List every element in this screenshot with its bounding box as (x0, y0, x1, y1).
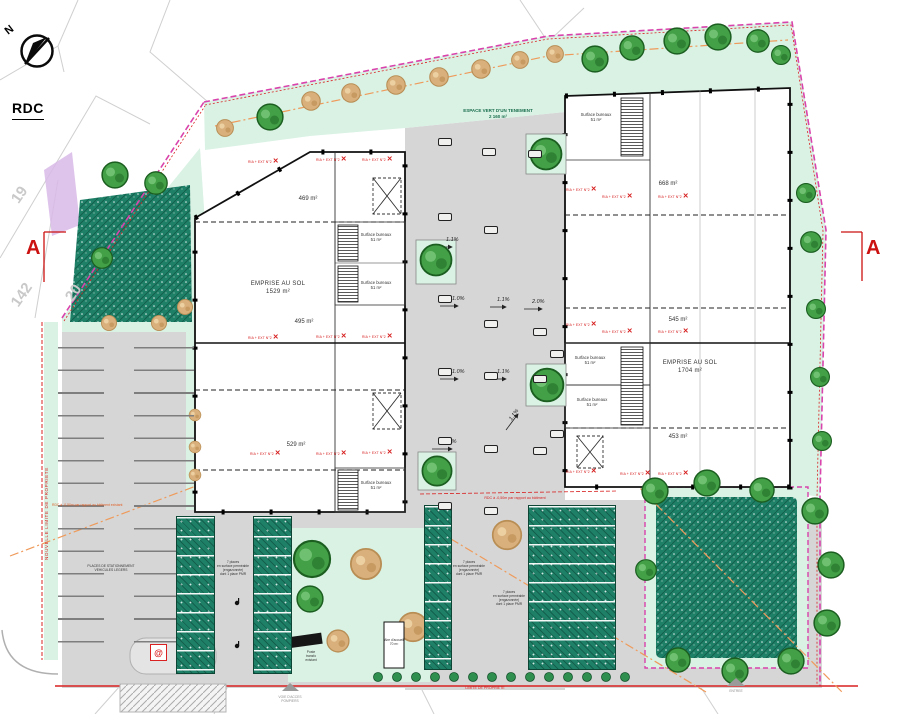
tree-icon (666, 648, 690, 672)
tree-icon (422, 456, 451, 485)
tree-icon (750, 478, 774, 502)
permeable-parking-bay (253, 516, 292, 674)
spot-level-chip (438, 213, 452, 221)
spot-level-chip (484, 445, 498, 453)
spot-level-chip (484, 320, 498, 328)
slope-label: 1.1% (497, 369, 510, 375)
fire-safety-tag: RIA + EXT N°2✕ (248, 334, 279, 341)
north-arrow-icon (22, 36, 53, 67)
spot-level-chip (438, 295, 452, 303)
fire-safety-tag: RIA + EXT N°2✕ (250, 450, 281, 457)
tree-icon (582, 46, 608, 72)
property-limit-label: NOUVELLE LIMITE DE PROPRIETE (44, 467, 50, 560)
unit-area-label: 469 m² (288, 196, 328, 204)
transfo-note: Poste transfo existant (296, 650, 326, 662)
spot-level-chip (438, 502, 452, 510)
fire-safety-tag: RIA + EXT N°2✕ (566, 186, 597, 193)
permeable-note: 7 places en surface perméable (engazonné… (492, 590, 526, 606)
fire-safety-tag: RIA + EXT N°2✕ (566, 468, 597, 475)
fire-safety-tag: RIA + EXT N°2✕ (658, 328, 689, 335)
unit-area-label: 529 m² (276, 442, 316, 450)
spot-level-chip (550, 350, 564, 358)
slope-label: 1.1% (446, 237, 459, 243)
level-note-left: RDC à -0,50m par rapport au bâtiment exi… (52, 503, 192, 507)
shrub-icon (217, 120, 234, 137)
tree-icon (257, 104, 283, 130)
unit-area-label: 545 m² (658, 317, 698, 325)
shrub-icon (342, 84, 360, 102)
fire-safety-tag: RIA + EXT N°2✕ (316, 450, 347, 457)
tree-icon (818, 552, 844, 578)
office-label: Surface bureaux51 m² (568, 397, 616, 408)
spot-level-chip (438, 437, 452, 445)
tree-icon (811, 368, 830, 387)
fire-safety-tag: RIA + EXT N°2✕ (602, 328, 633, 335)
parking-stalls-west (58, 326, 104, 660)
spot-level-chip (533, 328, 547, 336)
planted-area-west (70, 185, 192, 322)
fire-safety-tag: RIA + EXT N°2✕ (658, 193, 689, 200)
fire-safety-tag: RIA + EXT N°2✕ (248, 158, 279, 165)
tree-icon (807, 300, 826, 319)
spot-level-chip (484, 507, 498, 515)
fire-safety-tag: RIA + EXT N°2✕ (316, 333, 347, 340)
fire-safety-tag: RIA + EXT N°2✕ (362, 449, 393, 456)
shrub-icon (547, 46, 564, 63)
spot-level-chip (533, 447, 547, 455)
tree-icon (92, 248, 113, 269)
tree-icon (797, 184, 816, 203)
spot-level-chip (550, 430, 564, 438)
tree-icon (421, 245, 452, 276)
tree-icon (814, 610, 840, 636)
tree-icon (813, 432, 832, 451)
fire-safety-tag: RIA + EXT N°2✕ (566, 321, 597, 328)
tree-icon (694, 470, 720, 496)
tree-icon (642, 478, 668, 504)
emprise-label: EMPRISE AU SOL 1704 m² (640, 360, 740, 375)
espace-vert-label: ESPACE VERT D'UN TENEMENT2 160 m² (450, 108, 546, 120)
building-east (565, 88, 790, 487)
office-label: Surface bureaux51 m² (352, 480, 400, 491)
shrub-icon (177, 299, 192, 314)
permeable-parking-bay (176, 516, 215, 674)
access-label: ENTREE (726, 689, 746, 693)
electrical-symbol: @ (150, 644, 167, 661)
slope-label: 2.0% (532, 299, 545, 305)
aire-accueil-note: Aire d'accueil 70 m² (378, 638, 410, 646)
fire-safety-tag: RIA + EXT N°2✕ (316, 156, 347, 163)
shrub-icon (387, 76, 405, 94)
spot-level-chip (484, 372, 498, 380)
office-label: Surface bureaux51 m² (352, 280, 400, 291)
permeable-parking-bay (528, 505, 616, 670)
level-note-center: RDC à -0,50m par rapport au bâtiment (440, 496, 590, 500)
tree-icon (145, 172, 167, 194)
unit-area-label: 668 m² (648, 181, 688, 189)
planted-area-southeast (656, 497, 797, 658)
fire-safety-tag: RIA + EXT N°2✕ (620, 470, 651, 477)
permeable-note: 7 places en surface perméable (engazonné… (452, 560, 486, 576)
fire-safety-tag: RIA + EXT N°2✕ (362, 156, 393, 163)
fire-access-note: VOIE D'ACCES POMPIERS (266, 695, 314, 703)
office-label: Surface bureaux51 m² (572, 112, 620, 123)
shrub-icon (302, 92, 320, 110)
spot-level-chip (482, 148, 496, 156)
tree-icon (705, 24, 731, 50)
tree-icon (636, 560, 657, 581)
shrub-icon (327, 630, 349, 652)
permeable-note: 7 places en surface perméable (engazonné… (214, 560, 252, 576)
unit-area-label: 453 m² (658, 434, 698, 442)
purple-strip (44, 152, 80, 236)
slope-label: 1.1% (497, 297, 510, 303)
shrub-icon (472, 60, 490, 78)
building-west (195, 152, 405, 512)
tree-icon (802, 498, 828, 524)
boundary-label: LIMITE DE PROPRIETE (440, 686, 530, 690)
emprise-label: EMPRISE AU SOL 1529 m² (228, 281, 328, 296)
site-plan-rdc: RDC N A A 19 142 20 469 m² 495 m² 529 m²… (0, 0, 899, 714)
section-marker-right: A (866, 236, 880, 261)
spot-level-chip (533, 375, 547, 383)
shrub-icon (493, 521, 522, 550)
tree-icon (801, 232, 822, 253)
fire-safety-tag: RIA + EXT N°2✕ (362, 333, 393, 340)
tree-icon (294, 541, 330, 577)
spot-level-chip (438, 138, 452, 146)
fire-safety-tag: RIA + EXT N°2✕ (658, 470, 689, 477)
tree-icon (772, 46, 791, 65)
tree-icon (531, 369, 564, 402)
tree-icon (664, 28, 690, 54)
unit-area-label: 495 m² (284, 319, 324, 327)
section-marker-left: A (26, 236, 40, 261)
tree-icon (102, 162, 128, 188)
slope-label: 1.0% (452, 296, 465, 302)
tree-icon (620, 36, 644, 60)
existing-building (120, 684, 226, 712)
tree-icon (778, 648, 804, 674)
office-label: Surface bureaux51 m² (566, 355, 614, 366)
shrub-icon (512, 52, 529, 69)
shrub-icon (430, 68, 448, 86)
permeable-parking-bay (424, 505, 452, 670)
tree-icon (747, 30, 769, 52)
fire-safety-tag: RIA + EXT N°2✕ (602, 193, 633, 200)
spot-level-chip (484, 226, 498, 234)
tree-icon (297, 586, 323, 612)
spot-level-chip (438, 368, 452, 376)
shrub-icon (351, 549, 381, 579)
slope-label: 1.0% (452, 369, 465, 375)
page-title: RDC (12, 100, 44, 120)
office-label: Surface bureaux51 m² (352, 232, 400, 243)
parking-note: PLACES DE STATIONNEMENT VEHICULES LEGERS (80, 564, 142, 572)
spot-level-chip (528, 150, 542, 158)
